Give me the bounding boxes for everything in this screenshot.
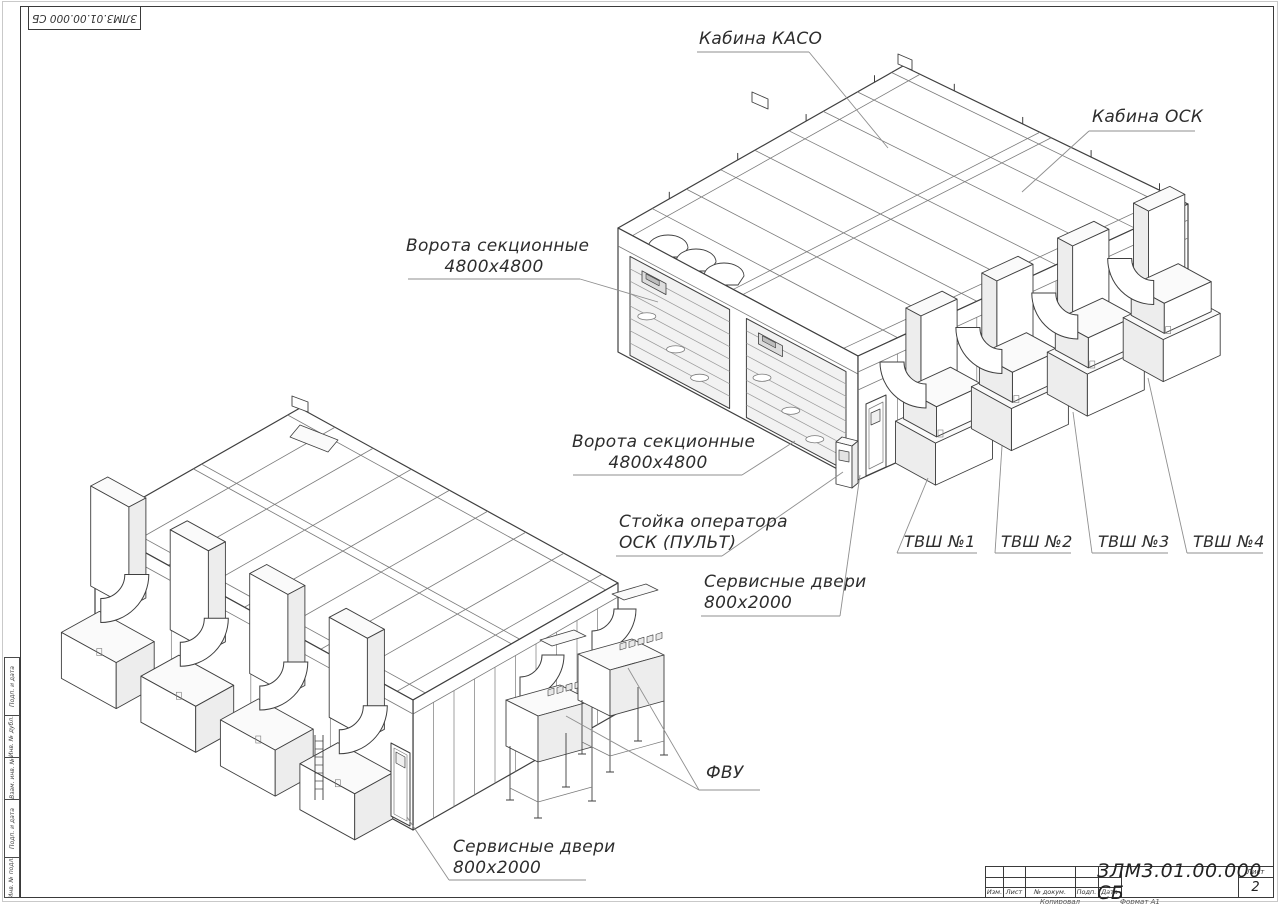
title-block: Изм. Лист № докум. Подп. Дата ЗЛМ3.01.00… xyxy=(985,866,1274,898)
callout-tvsh-3: ТВШ №3 xyxy=(1098,531,1170,552)
callout-sectional-gates-1: Ворота секционные 4800х4800 xyxy=(406,236,582,278)
sheet-label: Лист xyxy=(1238,867,1273,878)
tb-col-podp: Подп. xyxy=(1075,887,1098,897)
callout-tvsh-4: ТВШ №4 xyxy=(1193,531,1265,552)
margin-cell: Инв. № подл. xyxy=(5,858,19,897)
callout-operator-stand: Стойка оператора ОСК (ПУЛЬТ) xyxy=(619,512,788,554)
left-margin-strip: Подп. и дата Инв. № дубл. Взам. инв. № П… xyxy=(4,657,20,898)
tb-col-izm: Изм. xyxy=(986,887,1003,897)
tb-col-list: Лист xyxy=(1003,887,1025,897)
tb-col-docum: № докум. xyxy=(1025,887,1075,897)
callout-sectional-gates-2: Ворота секционные 4800х4800 xyxy=(572,432,744,474)
drawing-sheet: ЗЛМ3.01.00.000 СБ Подп. и дата Инв. № ду… xyxy=(0,0,1280,904)
callout-service-doors-2: Сервисные двери 800х2000 xyxy=(453,837,616,879)
stamp-doc-number: ЗЛМ3.01.00.000 СБ xyxy=(32,12,137,24)
copied-label: Копировал xyxy=(1040,898,1080,904)
callout-service-doors-1: Сервисные двери 800х2000 xyxy=(704,572,867,614)
callout-kaso-cabin: Кабина КАСО xyxy=(699,29,822,50)
callout-fvu: ФВУ xyxy=(706,763,744,784)
title-block-doc-number: ЗЛМ3.01.00.000 СБ xyxy=(1121,867,1238,897)
format-label: Формат А1 xyxy=(1120,898,1160,904)
callout-tvsh-1: ТВШ №1 xyxy=(904,531,976,552)
margin-cell: Подп. и дата xyxy=(5,800,19,858)
callout-osk-cabin: Кабина ОСК xyxy=(1092,107,1203,128)
sheet-number: 2 xyxy=(1238,878,1273,897)
callout-tvsh-2: ТВШ №2 xyxy=(1001,531,1073,552)
margin-cell: Инв. № дубл. xyxy=(5,716,19,758)
top-left-stamp: ЗЛМ3.01.00.000 СБ xyxy=(28,6,141,30)
margin-cell: Взам. инв. № xyxy=(5,758,19,800)
margin-cell: Подп. и дата xyxy=(5,658,19,716)
